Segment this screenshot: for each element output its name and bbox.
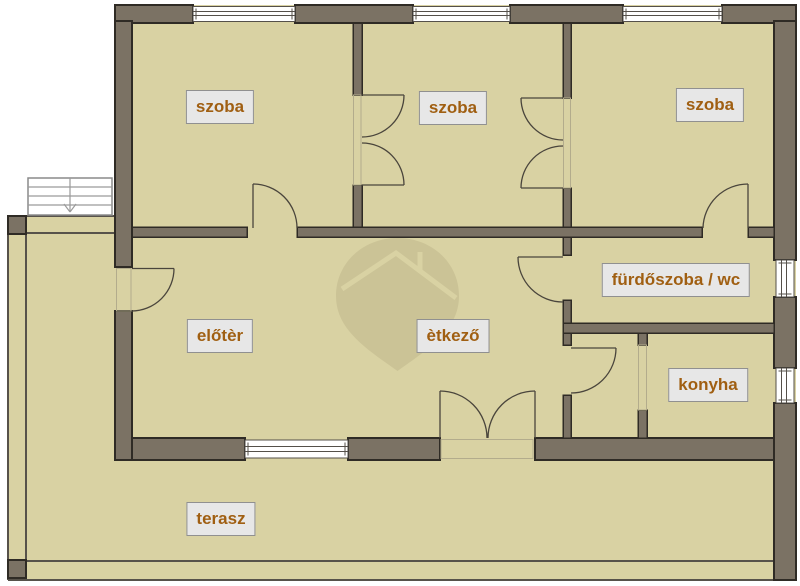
window <box>776 260 794 297</box>
room-label-szoba-1: szoba <box>186 90 254 124</box>
window <box>776 368 794 403</box>
room-label-konyha: konyha <box>668 368 748 402</box>
room-label-terasz: terasz <box>186 502 255 536</box>
window <box>245 440 348 458</box>
terrace-post <box>8 216 26 234</box>
room-label-furdoszoba-wc: fürdőszoba / wc <box>602 263 750 297</box>
room-label-etkezo: ètkező <box>417 319 490 353</box>
terrace-post <box>8 560 26 578</box>
window <box>193 7 295 22</box>
stairs-icon <box>28 178 112 215</box>
room-label-szoba-2: szoba <box>419 91 487 125</box>
window <box>413 7 510 22</box>
room-label-szoba-3: szoba <box>676 88 744 122</box>
room-label-eloter: előtèr <box>187 319 253 353</box>
window <box>623 7 722 22</box>
floor-plan-canvas: szoba szoba szoba fürdőszoba / wc konyha… <box>0 0 800 586</box>
